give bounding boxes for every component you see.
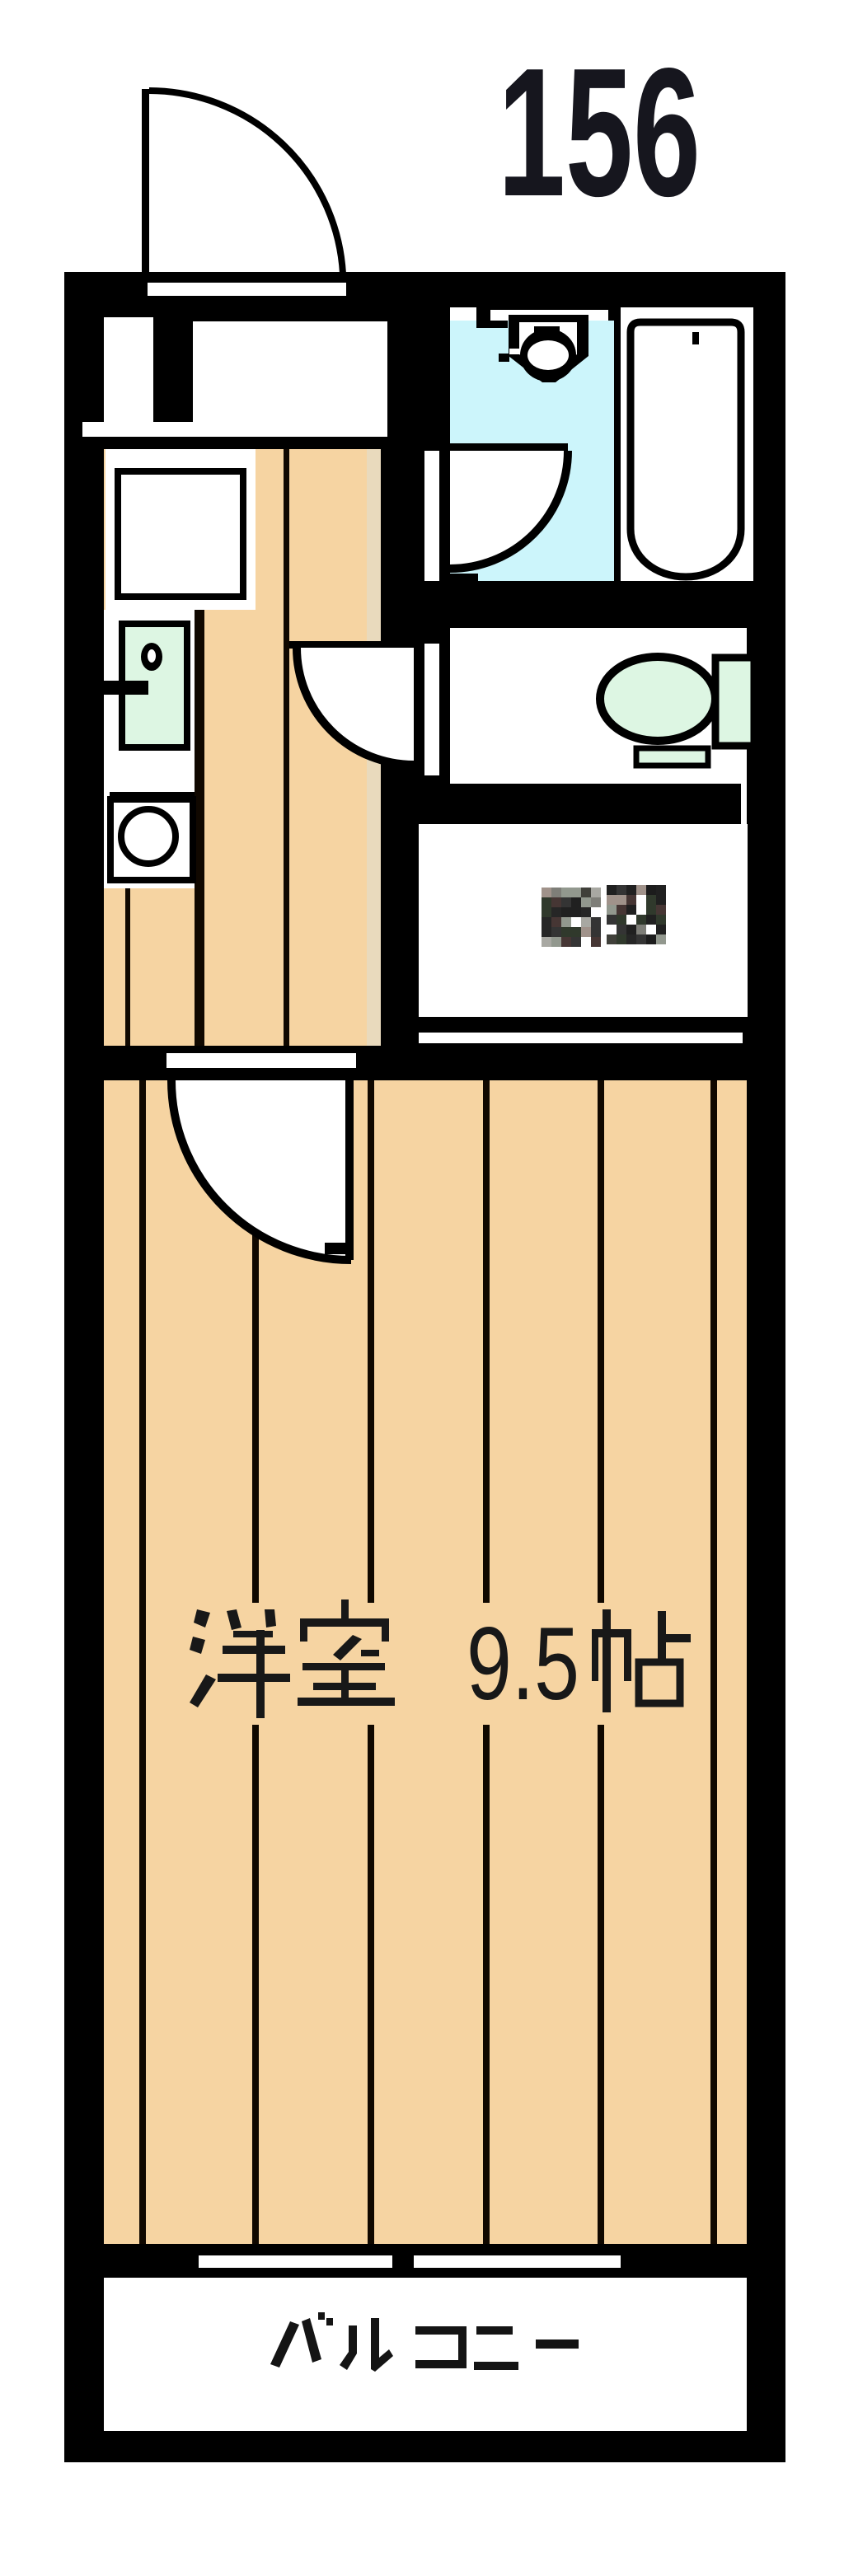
svg-text:9.5: 9.5	[467, 1607, 579, 1721]
svg-text:156: 156	[498, 30, 701, 235]
